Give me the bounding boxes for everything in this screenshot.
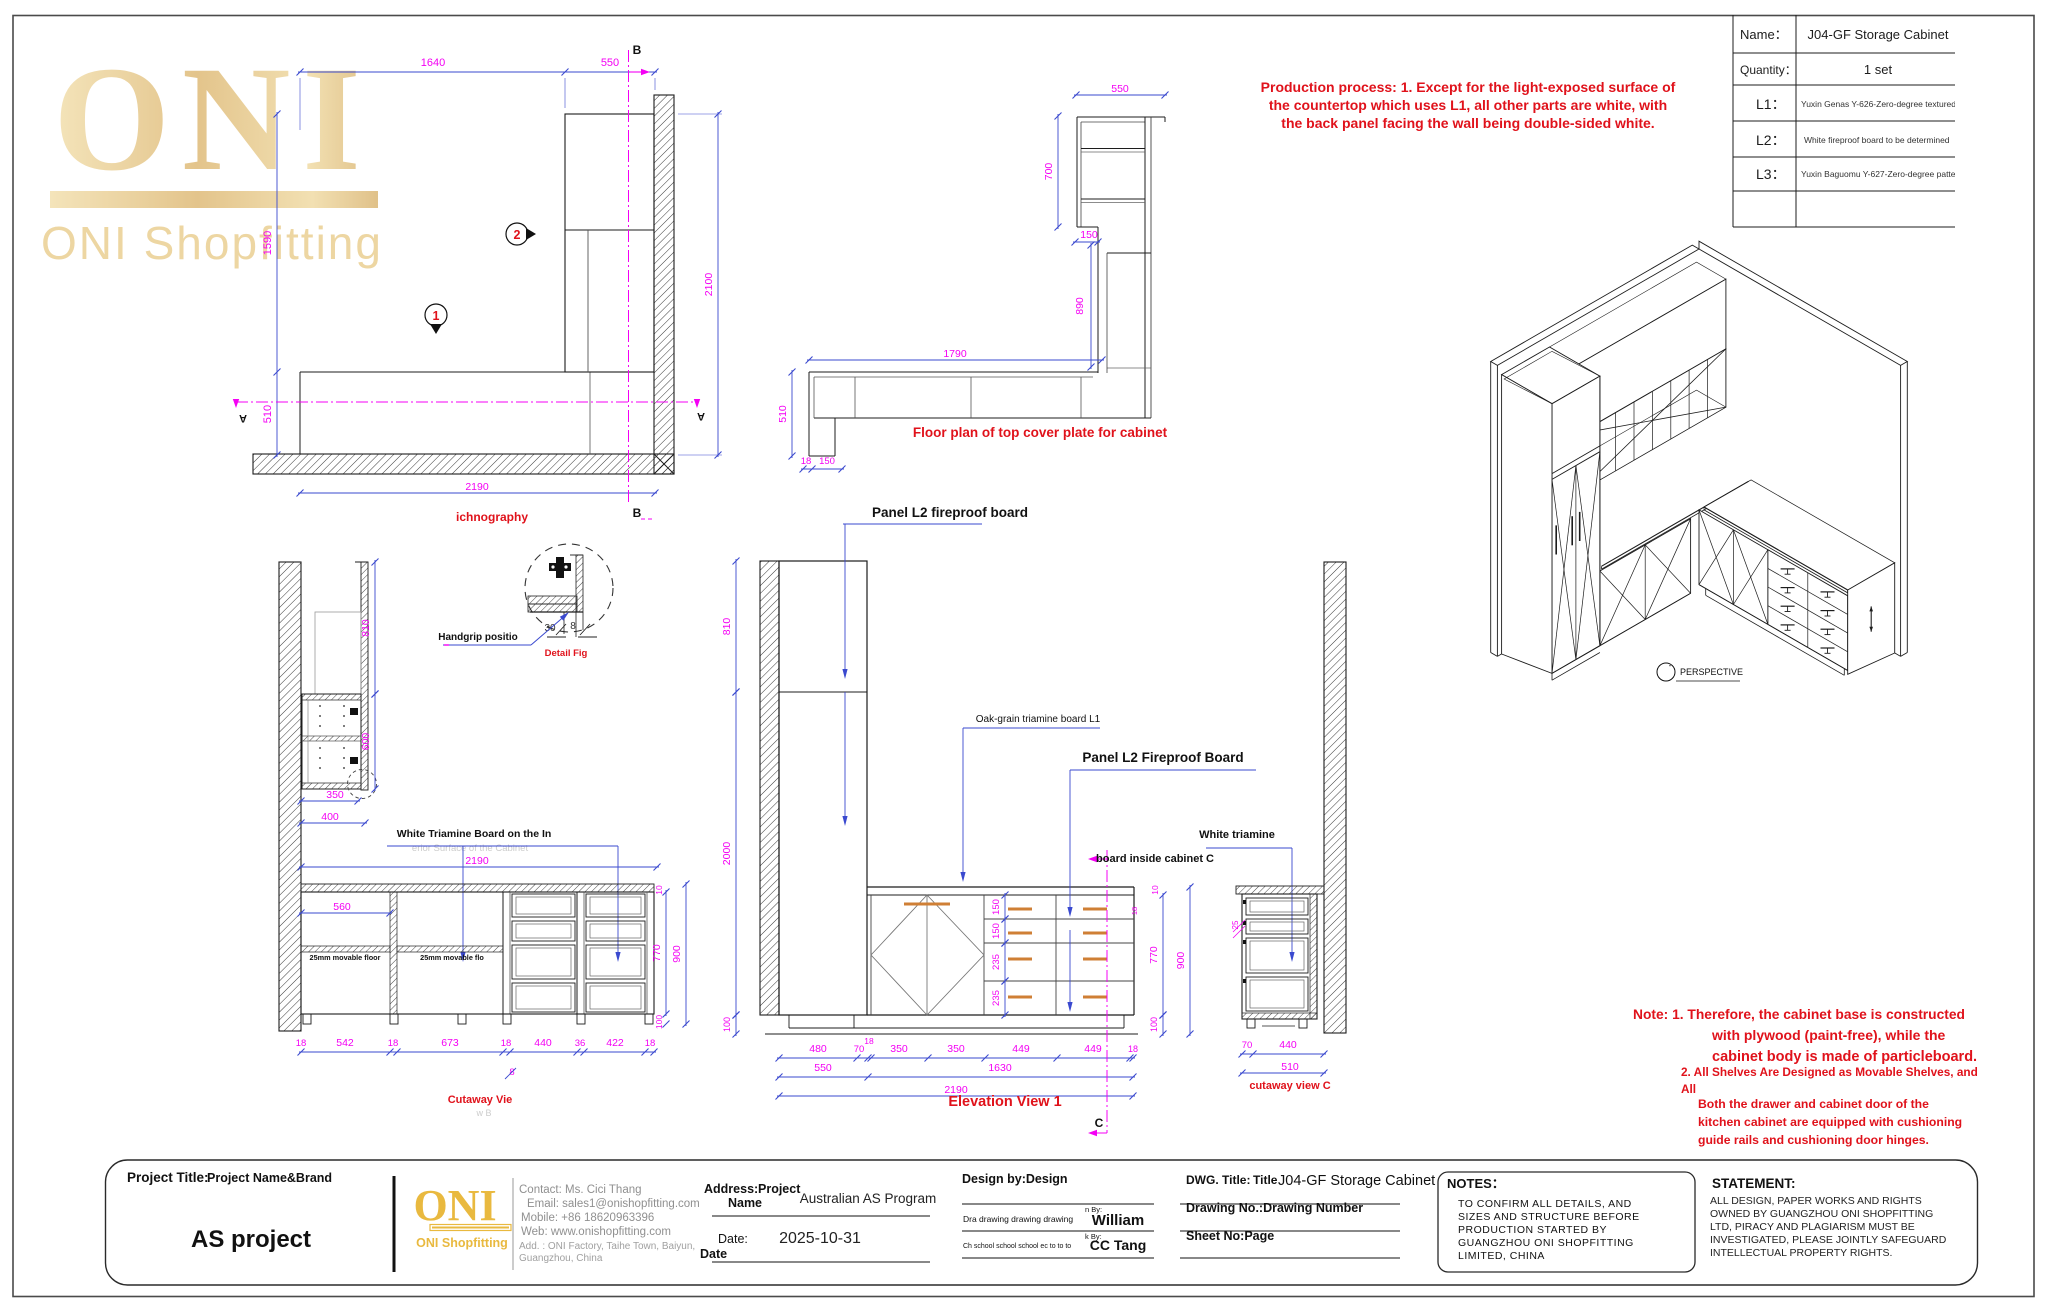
svg-text:CC Tang: CC Tang — [1090, 1237, 1147, 1253]
svg-text:770: 770 — [651, 944, 663, 962]
svg-text:18: 18 — [501, 1038, 512, 1049]
svg-text:2190: 2190 — [465, 855, 489, 867]
svg-text:L2：: L2： — [1756, 132, 1786, 148]
svg-text:2190: 2190 — [465, 481, 489, 493]
svg-text:10: 10 — [1150, 885, 1160, 895]
svg-text:Note: 1. Therefore, the cabine: Note: 1. Therefore, the cabinet base is … — [1633, 1007, 1965, 1022]
svg-text:ONI Shopfitting: ONI Shopfitting — [41, 217, 383, 269]
svg-text:Elevation View 1: Elevation View 1 — [948, 1094, 1061, 1110]
svg-text:kitchen cabinet are equipped w: kitchen cabinet are equipped with cushio… — [1698, 1115, 1962, 1129]
svg-text:Date: Date — [700, 1247, 727, 1261]
svg-text:William: William — [1092, 1212, 1144, 1229]
svg-text:2025-10-31: 2025-10-31 — [779, 1230, 861, 1247]
svg-text:Date:: Date: — [718, 1232, 748, 1246]
svg-text:Ch school school school ec to: Ch school school school ec to to to — [963, 1243, 1071, 1250]
svg-text:Oak-grain triamine board L1: Oak-grain triamine board L1 — [976, 714, 1101, 725]
svg-text:10: 10 — [654, 885, 664, 895]
svg-text:All: All — [1681, 1082, 1696, 1096]
svg-text:INVESTIGATED, PLEASE JOINTLY S: INVESTIGATED, PLEASE JOINTLY SAFEGUARD — [1710, 1234, 1947, 1246]
svg-text:Both the drawer and cabinet do: Both the drawer and cabinet door of the — [1698, 1097, 1929, 1111]
svg-text:L3：: L3： — [1756, 166, 1786, 182]
svg-text:510: 510 — [1281, 1061, 1299, 1073]
svg-text:Add. : ONI Factory, Taihe Town: Add. : ONI Factory, Taihe Town, Baiyun, — [519, 1241, 695, 1252]
svg-text:350: 350 — [326, 789, 344, 801]
svg-text:White triamine: White triamine — [1199, 829, 1275, 841]
svg-text:1630: 1630 — [988, 1062, 1012, 1074]
svg-text:A: A — [697, 410, 705, 422]
svg-text:Detail Fig: Detail Fig — [545, 648, 588, 659]
svg-text:36: 36 — [575, 1038, 586, 1049]
svg-text:2. All Shelves Are Designed as: 2. All Shelves Are Designed as Movable S… — [1681, 1065, 1978, 1079]
svg-text:70: 70 — [1242, 1040, 1253, 1051]
svg-text:ALL DESIGN, PAPER WORKS AND RI: ALL DESIGN, PAPER WORKS AND RIGHTS — [1710, 1195, 1922, 1207]
svg-text:Address:: Address: — [704, 1182, 758, 1196]
svg-text:Yuxin Genas Y-626-Zero-degree: Yuxin Genas Y-626-Zero-degree textured s — [1801, 99, 1963, 109]
svg-text:70: 70 — [854, 1044, 865, 1055]
svg-text:Quantity：: Quantity： — [1740, 63, 1797, 77]
svg-text:18: 18 — [864, 1036, 874, 1046]
svg-text:18: 18 — [296, 1038, 307, 1049]
svg-text:LTD, PIRACY AND PLAGIARISM MUS: LTD, PIRACY AND PLAGIARISM MUST BE — [1710, 1221, 1915, 1233]
svg-text:18: 18 — [801, 456, 812, 467]
svg-text:Drawing No.:Drawing Number: Drawing No.:Drawing Number — [1186, 1201, 1363, 1215]
svg-text:1 set: 1 set — [1864, 62, 1893, 77]
svg-text:cabinet body is made of partic: cabinet body is made of particleboard. — [1712, 1049, 1977, 1065]
svg-text:449: 449 — [1012, 1043, 1030, 1055]
svg-text:C: C — [1095, 1116, 1104, 1130]
svg-text:890: 890 — [1074, 297, 1086, 315]
svg-text:guide rails and cushioning doo: guide rails and cushioning door hinges. — [1698, 1133, 1929, 1147]
svg-text:1790: 1790 — [943, 348, 967, 360]
svg-text:PERSPECTIVE: PERSPECTIVE — [1680, 667, 1743, 677]
svg-text:542: 542 — [336, 1037, 354, 1049]
svg-text:2: 2 — [514, 228, 521, 242]
svg-text:ichnography: ichnography — [456, 510, 528, 524]
svg-text:673: 673 — [441, 1037, 459, 1049]
svg-text:440: 440 — [1279, 1039, 1297, 1051]
svg-text:Handgrip positio: Handgrip positio — [438, 632, 517, 643]
svg-text:Floor plan of top cover plate: Floor plan of top cover plate for cabine… — [913, 425, 1168, 440]
svg-text:AS project: AS project — [191, 1226, 311, 1253]
svg-text:25mm movable flo: 25mm movable flo — [420, 953, 484, 962]
svg-text:900: 900 — [671, 945, 683, 963]
svg-text:Sheet No:Page: Sheet No:Page — [1186, 1229, 1274, 1243]
svg-text:1590: 1590 — [262, 231, 274, 255]
svg-text:150: 150 — [991, 923, 1002, 939]
svg-text:cutaway view C: cutaway view C — [1249, 1080, 1330, 1092]
svg-text:INTELLECTUAL PROPERTY RIGHTS.: INTELLECTUAL PROPERTY RIGHTS. — [1710, 1247, 1892, 1259]
svg-text:L1：: L1： — [1756, 96, 1786, 112]
svg-text:18: 18 — [645, 1038, 656, 1049]
svg-text:J04-GF Storage Cabinet: J04-GF Storage Cabinet — [1808, 27, 1949, 42]
svg-text:810: 810 — [721, 618, 733, 636]
svg-text:18: 18 — [388, 1038, 399, 1049]
svg-text:Name: Name — [728, 1196, 762, 1210]
svg-text:Title: Title — [1253, 1173, 1278, 1187]
svg-text:510: 510 — [777, 405, 789, 423]
svg-text:550: 550 — [601, 57, 619, 69]
svg-text:Name：: Name： — [1740, 27, 1788, 42]
svg-text:Project: Project — [758, 1182, 801, 1196]
svg-text:A: A — [239, 412, 247, 424]
svg-text:2000: 2000 — [721, 842, 733, 866]
svg-text:Contact: Ms. Cici Thang: Contact: Ms. Cici Thang — [519, 1184, 642, 1196]
svg-text:810: 810 — [360, 619, 372, 637]
svg-text:Mobile: +86 18620963396: Mobile: +86 18620963396 — [521, 1212, 654, 1224]
svg-text:2100: 2100 — [703, 273, 715, 297]
svg-text:DWG. Title:: DWG. Title: — [1186, 1173, 1250, 1187]
svg-text:550: 550 — [814, 1062, 832, 1074]
svg-text:Design by:Design: Design by:Design — [962, 1172, 1068, 1186]
svg-text:235: 235 — [991, 954, 1002, 970]
svg-text:8: 8 — [570, 621, 576, 632]
svg-text:18: 18 — [1130, 907, 1139, 915]
svg-text:the back panel facing the wall: the back panel facing the wall being dou… — [1281, 115, 1654, 131]
svg-text:150: 150 — [1080, 229, 1098, 241]
svg-text:J04-GF Storage Cabinet: J04-GF Storage Cabinet — [1278, 1173, 1435, 1189]
svg-text:100: 100 — [722, 1017, 732, 1032]
svg-text:350: 350 — [890, 1043, 908, 1055]
svg-text:Project Name&Brand: Project Name&Brand — [207, 1171, 332, 1185]
svg-text:-: - — [1669, 661, 1672, 670]
svg-text:B: B — [633, 43, 642, 57]
svg-text:770: 770 — [1148, 946, 1160, 964]
svg-text:900: 900 — [1175, 952, 1187, 970]
svg-text:White Triamine Board on the In: White Triamine Board on the In — [397, 828, 552, 840]
svg-text:TO CONFIRM ALL DETAILS, AND: TO CONFIRM ALL DETAILS, AND — [1458, 1198, 1632, 1210]
svg-text:PRODUCTION STARTED BY: PRODUCTION STARTED BY — [1458, 1224, 1607, 1236]
svg-text:150: 150 — [819, 456, 835, 467]
svg-text:150: 150 — [991, 899, 1002, 915]
svg-text:Australian AS Program: Australian AS Program — [800, 1191, 937, 1206]
svg-text:GUANGZHOU ONI SHOPFITTING: GUANGZHOU ONI SHOPFITTING — [1458, 1237, 1634, 1249]
svg-text:560: 560 — [333, 901, 351, 913]
svg-text:STATEMENT:: STATEMENT: — [1712, 1176, 1796, 1191]
svg-text:400: 400 — [321, 811, 339, 823]
svg-text:Panel L2 Fireproof Board: Panel L2 Fireproof Board — [1082, 750, 1243, 765]
svg-text:25: 25 — [1231, 920, 1240, 929]
svg-text:1: 1 — [433, 309, 440, 323]
svg-text:B: B — [633, 506, 642, 520]
svg-text:100: 100 — [1149, 1017, 1159, 1032]
svg-text:NOTES：: NOTES： — [1447, 1176, 1505, 1191]
svg-text:449: 449 — [1084, 1043, 1102, 1055]
svg-text:board inside cabinet C: board inside cabinet C — [1096, 853, 1214, 865]
svg-text:LIMITED, CHINA: LIMITED, CHINA — [1458, 1250, 1545, 1262]
svg-text:18: 18 — [1128, 1044, 1138, 1054]
svg-text:550: 550 — [1111, 83, 1129, 95]
svg-text:1640: 1640 — [421, 57, 445, 69]
svg-text:Panel L2 fireproof board: Panel L2 fireproof board — [872, 505, 1028, 520]
svg-text:Dra drawing drawing drawing: Dra drawing drawing drawing — [963, 1214, 1073, 1224]
svg-text:the countertop which uses L1,: the countertop which uses L1, all other … — [1269, 97, 1667, 113]
svg-text:with plywood (paint-free), whi: with plywood (paint-free), while the — [1711, 1027, 1946, 1043]
svg-text:Yuxin Baguomu Y-627-Zero-degre: Yuxin Baguomu Y-627-Zero-degree patter — [1801, 169, 1959, 179]
svg-text:Project Title:: Project Title: — [127, 1170, 209, 1185]
svg-text:350: 350 — [947, 1043, 965, 1055]
svg-text:235: 235 — [991, 990, 1002, 1006]
svg-text:510: 510 — [262, 405, 274, 423]
svg-text:ONI Shopfitting: ONI Shopfitting — [416, 1236, 508, 1250]
svg-text:440: 440 — [534, 1037, 552, 1049]
svg-text:25mm movable floor: 25mm movable floor — [310, 953, 381, 962]
svg-text:erior Surface of the Cabinet: erior Surface of the Cabinet — [412, 843, 529, 854]
svg-text:SIZES AND STRUCTURE BEFORE: SIZES AND STRUCTURE BEFORE — [1458, 1211, 1640, 1223]
svg-text:422: 422 — [606, 1037, 624, 1049]
svg-text:w B: w B — [475, 1108, 491, 1118]
svg-text:Web: www.onishopfitting.com: Web: www.onishopfitting.com — [521, 1226, 671, 1238]
svg-text:600: 600 — [360, 733, 372, 751]
svg-text:ONI: ONI — [53, 36, 372, 202]
svg-text:ONI: ONI — [413, 1181, 496, 1230]
svg-text:Production process: 1. Except: Production process: 1. Except for the li… — [1261, 79, 1676, 95]
svg-text:OWNED BY GUANGZHOU ONI SHOPFIT: OWNED BY GUANGZHOU ONI SHOPFITTING — [1710, 1208, 1933, 1220]
svg-text:Cutaway Vie: Cutaway Vie — [448, 1094, 513, 1106]
svg-text:Email: sales1@onishopfitting.c: Email: sales1@onishopfitting.com — [527, 1198, 700, 1210]
svg-text:700: 700 — [1043, 163, 1055, 181]
svg-text:Guangzhou, China: Guangzhou, China — [519, 1253, 603, 1264]
svg-text:480: 480 — [809, 1043, 827, 1055]
svg-text:White fireproof board to be de: White fireproof board to be determined — [1804, 135, 1950, 145]
